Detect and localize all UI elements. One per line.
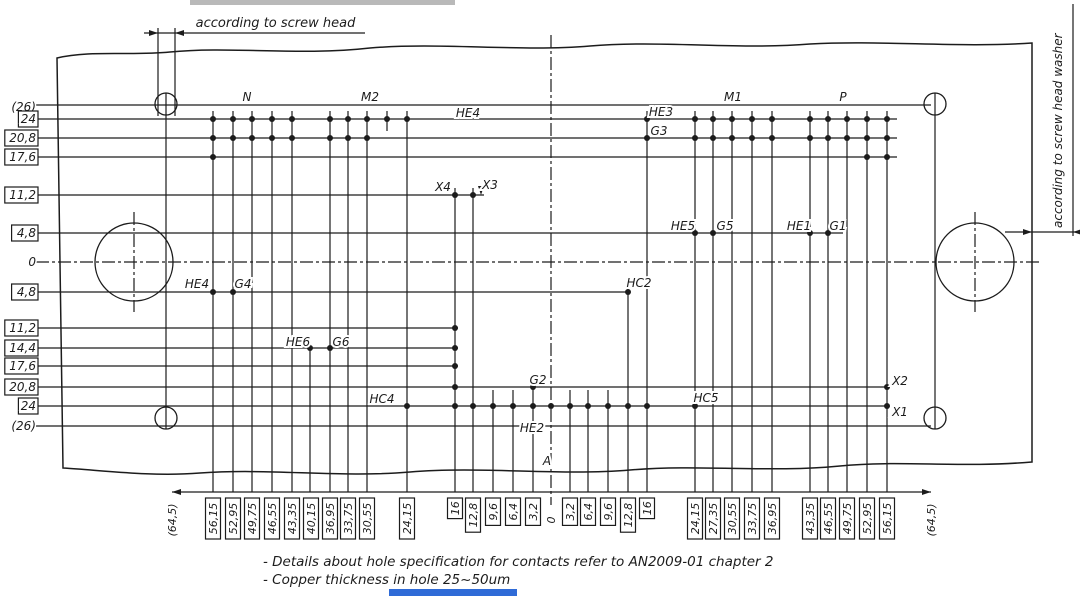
screw-head-washer-dimension-note: according to screw head washer: [1051, 0, 1067, 228]
left-dim-label: (26): [11, 419, 36, 433]
bottom-dim-label: 12,8: [622, 503, 635, 528]
bottom-dim-label: 36,95: [766, 503, 779, 535]
contact-dot: [289, 135, 295, 141]
contact-dot: [364, 116, 370, 122]
contact-dot: [510, 403, 516, 409]
contact-dot: [230, 116, 236, 122]
note-hole-specification: - Details about hole specification for c…: [263, 554, 774, 570]
contact-dot: [729, 135, 735, 141]
technical-drawing-canvas: (26)2420,817,611,24,804,811,214,417,620,…: [0, 0, 1080, 596]
contact-dot: [210, 116, 216, 122]
point-label-G3: G3: [651, 124, 668, 138]
contact-dot: [345, 116, 351, 122]
bottom-dim-label: 43,35: [804, 503, 817, 535]
dimension-arrowhead: [1023, 229, 1032, 235]
bottom-dim-label: 49,75: [246, 503, 259, 535]
bottom-dim-label: 30,55: [726, 503, 739, 535]
contact-dot: [729, 116, 735, 122]
contact-dot: [327, 116, 333, 122]
contact-dot: [269, 116, 275, 122]
left-dim-label: 17,6: [9, 150, 36, 164]
contact-dot: [884, 384, 890, 390]
contact-dot: [644, 403, 650, 409]
contact-dot: [844, 135, 850, 141]
contact-dot: [404, 116, 410, 122]
contact-dot: [249, 116, 255, 122]
bottom-dim-label: 36,95: [324, 503, 337, 535]
contact-dot: [844, 116, 850, 122]
contact-dot: [710, 135, 716, 141]
engineering-drawing-page: (26)2420,817,611,24,804,811,214,417,620,…: [0, 0, 1080, 596]
contact-dot: [567, 403, 573, 409]
dimension-arrowhead: [1073, 229, 1080, 235]
point-label-X3: X3: [481, 178, 498, 192]
point-label-G1: G1: [830, 219, 847, 233]
contact-dot: [452, 345, 458, 351]
contact-dot: [807, 116, 813, 122]
left-dim-label: 20,8: [9, 380, 36, 394]
scan-artifact-bottom: [389, 589, 517, 596]
contact-dot: [364, 135, 370, 141]
contact-dot: [210, 289, 216, 295]
contact-dot: [864, 154, 870, 160]
bottom-dim-label: (64,5): [925, 503, 938, 536]
point-label-HC2: HC2: [626, 276, 651, 290]
contact-dot: [210, 154, 216, 160]
left-dim-label: 11,2: [9, 321, 36, 335]
contact-dot: [692, 116, 698, 122]
point-label-HE1: HE1: [787, 219, 811, 233]
contact-dot: [327, 135, 333, 141]
bottom-dim-label: 30,55: [361, 503, 374, 535]
point-label-HE6: HE6: [286, 335, 311, 349]
contact-dot: [210, 135, 216, 141]
contact-dot: [452, 363, 458, 369]
contact-dot: [769, 135, 775, 141]
bottom-dim-label: 24,15: [689, 503, 702, 535]
point-label-X2: X2: [891, 374, 908, 388]
dimension-arrowhead: [922, 489, 931, 495]
contact-dot: [404, 403, 410, 409]
contact-dot: [470, 192, 476, 198]
contact-dot: [625, 403, 631, 409]
left-dim-label: 4,8: [17, 226, 36, 240]
point-label-G5: G5: [717, 219, 734, 233]
point-label-M1: M1: [724, 90, 742, 104]
bottom-dim-label: 0: [545, 517, 558, 524]
point-label-N: N: [243, 90, 252, 104]
dimension-arrowhead: [149, 30, 158, 36]
contact-dot: [884, 403, 890, 409]
dimension-arrowhead: [172, 489, 181, 495]
left-dim-label: 24: [21, 399, 36, 413]
bottom-dim-label: 46,55: [822, 503, 835, 535]
bottom-dim-label: 16: [449, 501, 462, 515]
point-label-X1: X1: [891, 405, 908, 419]
bottom-dim-label: 52,95: [227, 503, 240, 535]
contact-dot: [710, 230, 716, 236]
left-dim-label: 17,6: [9, 359, 36, 373]
bottom-dim-label: 3,2: [527, 503, 540, 521]
bottom-dim-label: 9,6: [602, 503, 615, 521]
left-dim-label: 0: [28, 255, 36, 269]
bottom-dim-label: 27,35: [707, 503, 720, 535]
contact-dot: [807, 135, 813, 141]
contact-dot: [269, 135, 275, 141]
left-dim-label: 4,8: [17, 285, 36, 299]
point-label-HE4: HE4: [456, 106, 480, 120]
bottom-dim-label: 52,95: [861, 503, 874, 535]
point-label-P: P: [839, 90, 847, 104]
point-label-HE3: HE3: [649, 105, 673, 119]
point-label-M2: M2: [361, 90, 379, 104]
contact-dot: [884, 154, 890, 160]
screw-head-dimension-note: according to screw head: [183, 16, 368, 31]
contact-dot: [289, 116, 295, 122]
contact-dot: [884, 116, 890, 122]
bottom-dim-label: (64,5): [166, 503, 179, 536]
contact-dot: [710, 116, 716, 122]
point-label-G2: G2: [530, 373, 547, 387]
left-dim-label: 14,4: [9, 341, 36, 355]
point-label-HE4: HE4: [185, 277, 209, 291]
contact-dot: [749, 116, 755, 122]
contact-dot: [384, 116, 390, 122]
contact-dot: [644, 135, 650, 141]
contact-dot: [452, 325, 458, 331]
bottom-dim-label: 16: [641, 501, 654, 515]
bottom-dim-label: 46,55: [266, 503, 279, 535]
bottom-dim-label: 40,15: [305, 503, 318, 535]
bottom-dim-label: 9,6: [487, 503, 500, 521]
contact-dot: [452, 403, 458, 409]
contact-dot: [749, 135, 755, 141]
contact-dot: [864, 135, 870, 141]
bottom-dim-label: 3,2: [564, 503, 577, 521]
left-dim-label: 24: [21, 112, 36, 126]
contact-dot: [490, 403, 496, 409]
contact-dot: [825, 116, 831, 122]
point-label-G4: G4: [235, 277, 252, 291]
left-dim-label: 11,2: [9, 188, 36, 202]
left-dim-label: 20,8: [9, 131, 36, 145]
contact-dot: [249, 135, 255, 141]
contact-dot: [345, 135, 351, 141]
contact-dot: [230, 135, 236, 141]
bottom-dim-label: 56,15: [881, 503, 894, 535]
bottom-dim-label: 33,75: [746, 503, 759, 535]
bottom-dim-label: 33,75: [342, 503, 355, 535]
point-label-HE2: HE2: [520, 421, 544, 435]
contact-dot: [884, 135, 890, 141]
bottom-dim-label: 49,75: [841, 503, 854, 535]
point-label-X4: X4: [434, 180, 451, 194]
point-label-A: A: [542, 454, 551, 468]
contact-dot: [470, 403, 476, 409]
contact-dot: [548, 403, 554, 409]
contact-dot: [585, 403, 591, 409]
bottom-dim-label: 6,4: [582, 503, 595, 521]
contact-dot: [692, 135, 698, 141]
bottom-dim-label: 43,35: [286, 503, 299, 535]
bottom-dim-label: 12,8: [467, 503, 480, 528]
contact-dot: [769, 116, 775, 122]
point-label-HC5: HC5: [693, 391, 718, 405]
point-label-G6: G6: [333, 335, 350, 349]
contact-dot: [452, 384, 458, 390]
contact-dot: [825, 135, 831, 141]
bottom-dim-label: 56,15: [207, 503, 220, 535]
contact-dot: [452, 192, 458, 198]
point-label-HC4: HC4: [369, 392, 394, 406]
bottom-dim-label: 6,4: [507, 503, 520, 521]
contact-dot: [605, 403, 611, 409]
pcb-outline: [57, 43, 1032, 474]
note-copper-thickness: - Copper thickness in hole 25~50um: [263, 572, 510, 588]
point-label-HE5: HE5: [671, 219, 695, 233]
bottom-dim-label: 24,15: [401, 503, 414, 535]
scan-artifact-top: [190, 0, 455, 5]
contact-dot: [530, 403, 536, 409]
contact-dot: [864, 116, 870, 122]
